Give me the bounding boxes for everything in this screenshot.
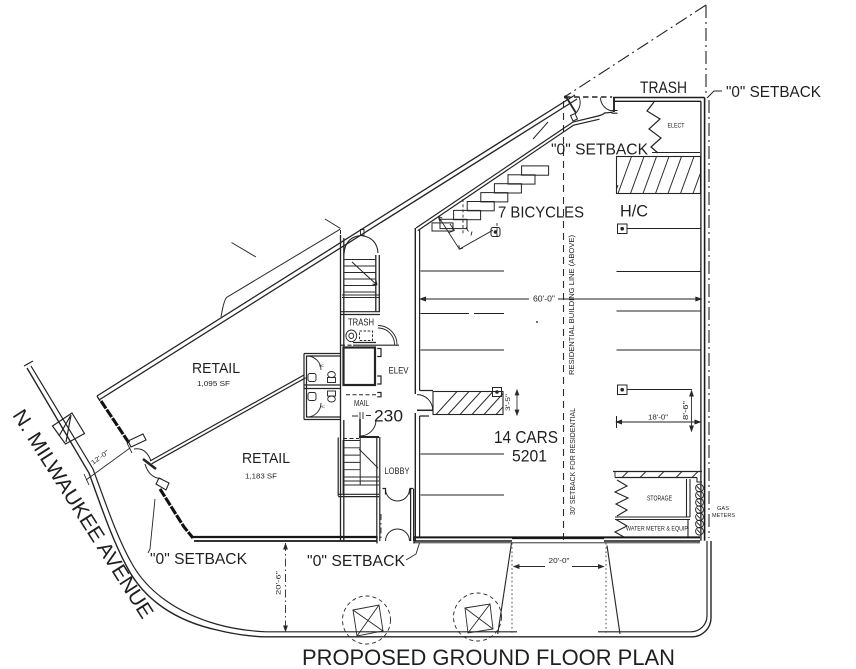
svg-text:"0" SETBACK: "0" SETBACK: [726, 84, 821, 101]
svg-text:HC: HC: [320, 405, 325, 409]
svg-text:20'-6": 20'-6": [276, 570, 283, 595]
svg-text:7 BICYCLES: 7 BICYCLES: [498, 205, 584, 222]
svg-text:PROPOSED GROUND FLOOR PLAN: PROPOSED GROUND FLOOR PLAN: [302, 645, 675, 669]
svg-text:1,095 SF: 1,095 SF: [197, 379, 230, 388]
svg-text:LOBBY: LOBBY: [385, 466, 411, 477]
svg-text:WATER METER & EQUIP: WATER METER & EQUIP: [626, 526, 688, 533]
svg-text:H/C: H/C: [620, 202, 648, 221]
svg-text:5201: 5201: [512, 447, 547, 466]
svg-text:HC: HC: [319, 364, 324, 368]
svg-text:GAS: GAS: [717, 506, 729, 512]
svg-text:METERS: METERS: [712, 513, 735, 519]
svg-text:RETAIL: RETAIL: [242, 451, 290, 467]
svg-text:"0" SETBACK: "0" SETBACK: [150, 551, 247, 568]
svg-text:MAIL: MAIL: [354, 399, 369, 408]
svg-text:18'-0": 18'-0": [648, 413, 668, 422]
svg-text:RETAIL: RETAIL: [192, 361, 240, 377]
svg-text:3'-5": 3'-5": [506, 394, 512, 411]
svg-text:STORAGE: STORAGE: [647, 496, 672, 503]
svg-text:TRASH: TRASH: [640, 78, 687, 97]
svg-text:20'-0": 20'-0": [549, 558, 571, 565]
svg-text:230: 230: [374, 408, 403, 426]
svg-text:"0" SETBACK: "0" SETBACK: [307, 553, 405, 570]
svg-text:1,183 SF: 1,183 SF: [245, 472, 277, 481]
svg-text:14 CARS: 14 CARS: [494, 427, 558, 447]
svg-text:TRASH: TRASH: [348, 318, 374, 329]
svg-text:30' SETBACK FOR RESIDENTIAL: 30' SETBACK FOR RESIDENTIAL: [570, 408, 577, 515]
svg-text:"0" SETBACK: "0" SETBACK: [551, 142, 648, 159]
svg-text:8'-6": 8'-6": [683, 400, 690, 420]
svg-text:ELECT: ELECT: [668, 123, 685, 130]
svg-text:60'-0": 60'-0": [533, 295, 555, 304]
svg-text:RESIDENTIAL BUILDING LINE (ABO: RESIDENTIAL BUILDING LINE (ABOVE): [569, 235, 576, 375]
svg-text:ELEV: ELEV: [389, 366, 410, 377]
